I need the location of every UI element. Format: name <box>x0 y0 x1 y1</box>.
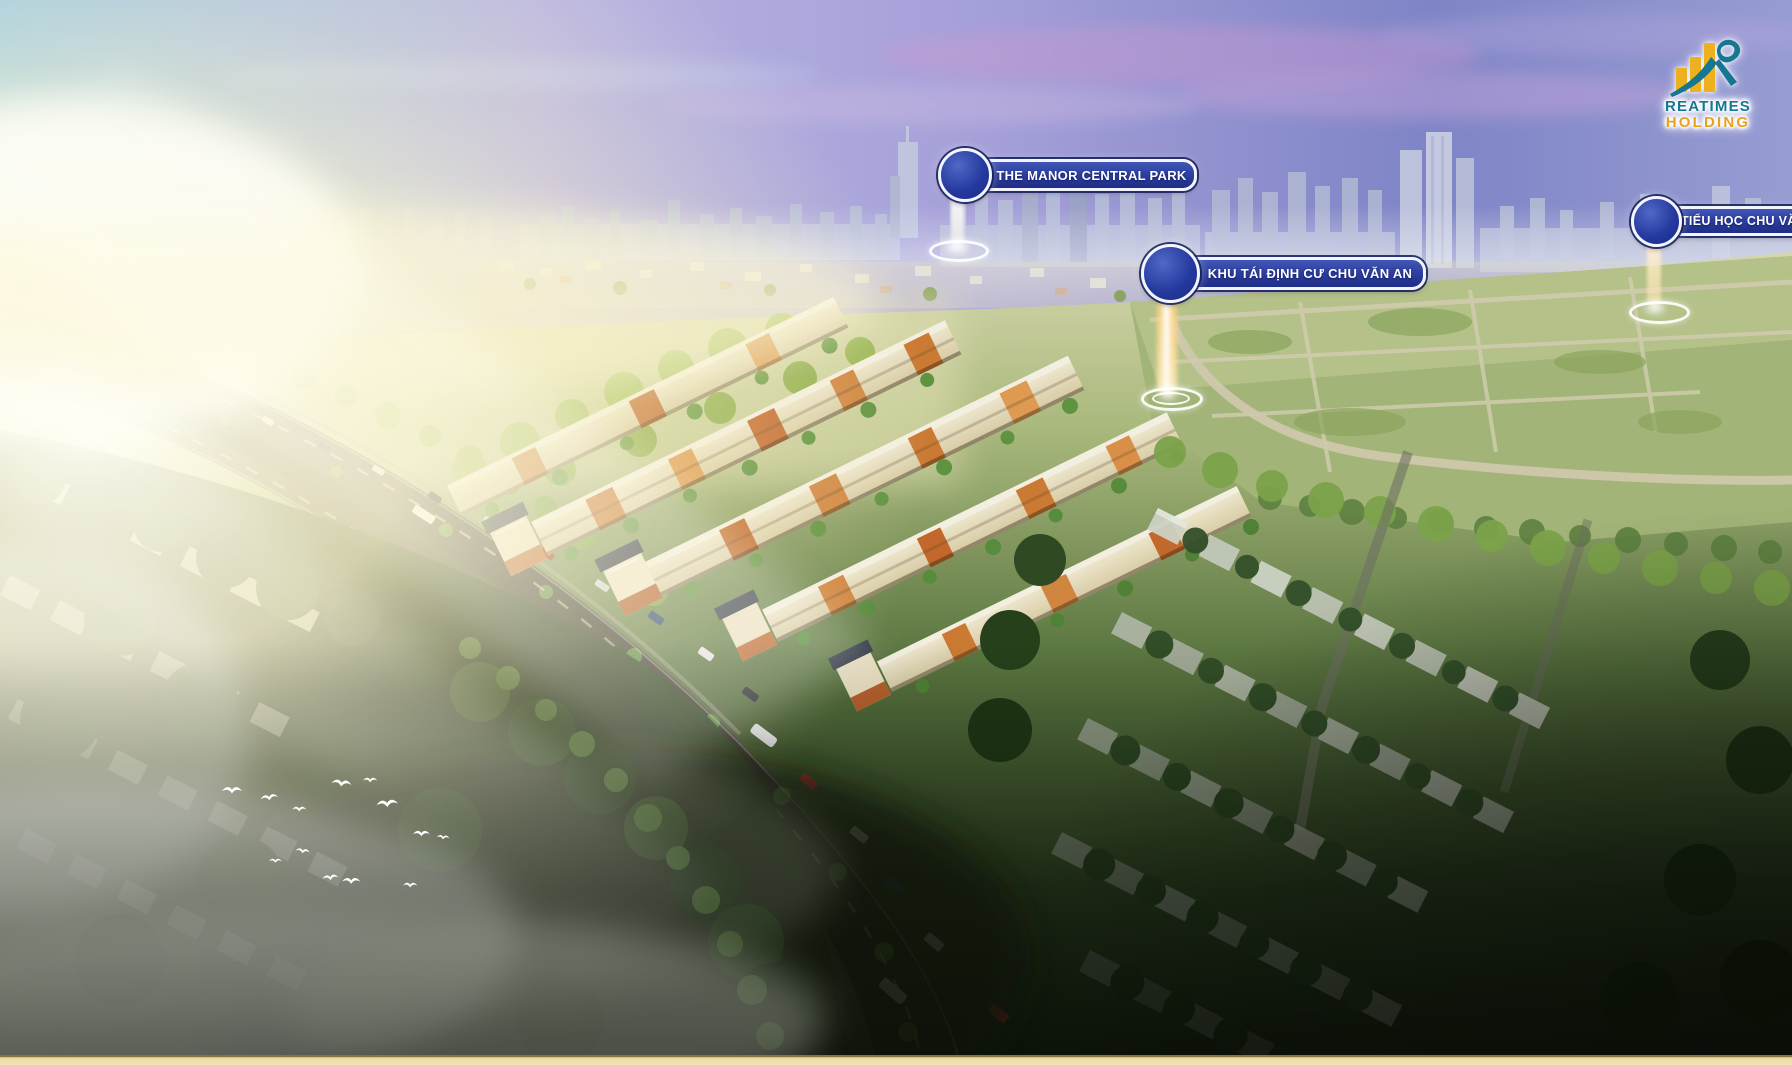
logo-text-reatimes: REATIMES <box>1652 98 1764 115</box>
aerial-render-image: THE MANOR CENTRAL PARK KHU TÁI ĐỊNH CƯ C… <box>0 0 1792 1065</box>
logo-mark-icon <box>1668 36 1748 98</box>
aerial-scene <box>0 0 1792 1065</box>
logo-text-holding: HOLDING <box>1652 114 1764 131</box>
reatimes-holding-logo: REATIMES HOLDING <box>1652 36 1764 131</box>
bottom-gold-border <box>0 1055 1792 1065</box>
